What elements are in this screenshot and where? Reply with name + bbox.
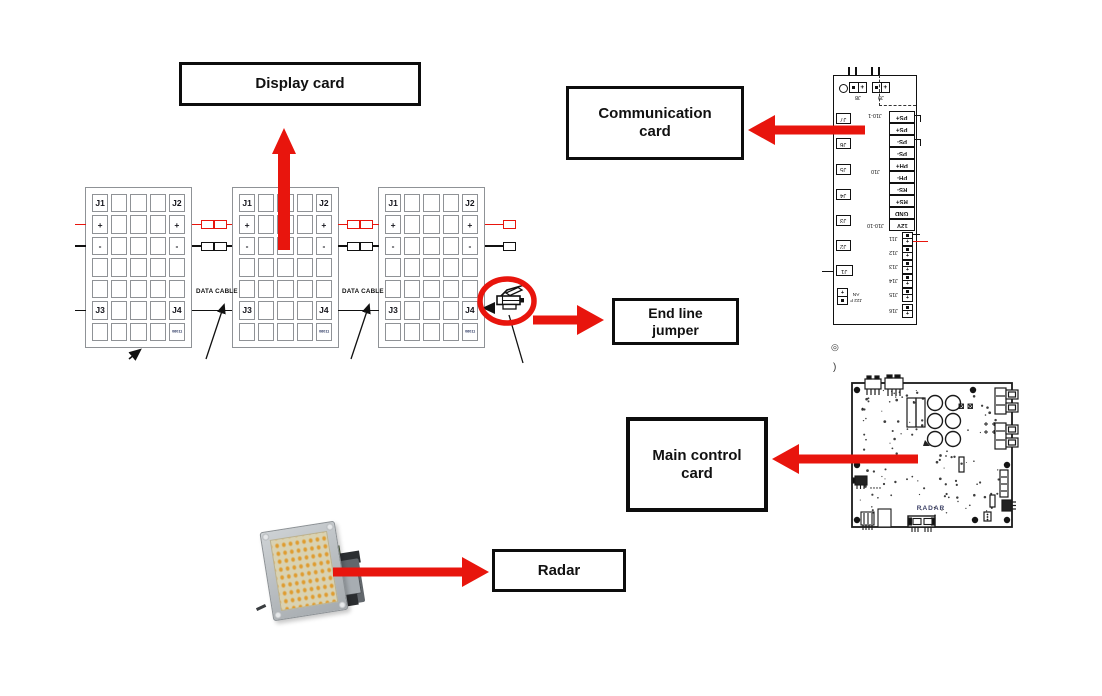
panel-cell: 06011: [462, 323, 478, 341]
comm-io-group-label: J10: [863, 168, 887, 174]
panel-cell: [297, 323, 313, 341]
radar-antenna-plate: [259, 521, 348, 622]
panel-connector-J3: J3: [92, 301, 108, 319]
terminal-plus-cell: +: [903, 281, 912, 287]
link-connector: [201, 242, 214, 251]
panel-cell: [258, 301, 274, 319]
comm-io-terminal-1: PS+: [889, 123, 915, 135]
label-text: J6: [840, 141, 846, 147]
label-text: 12V: [897, 222, 908, 228]
panel-cell: [423, 280, 439, 298]
panel-cell: [130, 237, 146, 255]
link-connector: [214, 242, 227, 251]
panel-cell: [297, 194, 313, 212]
pcb-radar-silkscreen: RADAR: [917, 505, 945, 512]
comm-power-label-J14: J14: [885, 277, 901, 283]
panel-connector--: -: [462, 237, 478, 255]
comm-io-terminal-6: RS-: [889, 183, 915, 195]
data-cable-label-2: DATA CABLE: [342, 288, 384, 295]
panel-connector--: -: [239, 237, 255, 255]
arrow-to-end-line-jumper: [533, 305, 604, 335]
power-link-wire: [192, 310, 232, 312]
panel-cell: [385, 323, 401, 341]
panel-cell: [111, 258, 127, 276]
link-connector: [347, 242, 360, 251]
panel-cell: [423, 194, 439, 212]
panel-cell: [258, 237, 274, 255]
panel-connector-J3: J3: [239, 301, 255, 319]
comm-terminal-label-J8: J8: [849, 94, 867, 100]
label-text: J13: [889, 263, 898, 269]
panel-cell: [258, 258, 274, 276]
main-control-card-label-box: Main control card: [626, 417, 768, 512]
comm-power-label-J12: J12: [885, 249, 901, 255]
label-text: PS-: [897, 138, 907, 144]
label-text: PS+: [896, 114, 908, 120]
panel-cell: [297, 280, 313, 298]
label-text: PH+: [896, 162, 908, 168]
end-line-jumper-label-box: End line jumper: [612, 298, 739, 345]
power-link-wire: [75, 224, 86, 226]
comm-power-terminal-J15: +: [902, 288, 913, 302]
data-cable-leader-2: [351, 305, 369, 359]
panel-cell: [111, 301, 127, 319]
terminal-plus-cell: +: [903, 267, 912, 273]
data-cable-leader-1: [206, 305, 224, 359]
comm-power-terminal-J13: +: [902, 260, 913, 274]
panel-cell: [258, 215, 274, 233]
link-connector: [201, 220, 214, 229]
terminal-plus-cell: +: [838, 289, 847, 297]
link-connector: [360, 220, 373, 229]
panel-connector-+: +: [239, 215, 255, 233]
terminal-plus-cell: +: [903, 253, 912, 259]
link-connector: [360, 242, 373, 251]
comm-fan-label: J22 FAN: [849, 287, 863, 305]
panel-cell: [92, 280, 108, 298]
comm-power-terminal-J14: +: [902, 274, 913, 288]
comm-io-terminal-2: PS-: [889, 135, 915, 147]
comm-connector-J3: J3: [836, 215, 851, 226]
panel-connector-J2: J2: [462, 194, 478, 212]
display-card-panel: J1J2++--J3J406011: [85, 187, 192, 348]
display-card-label: Display card: [255, 75, 344, 93]
comm-dashed-region: [879, 75, 916, 106]
panel-cell: [423, 215, 439, 233]
radar-screw: [326, 523, 334, 531]
panel-cell: [239, 323, 255, 341]
comm-top-pin: [848, 67, 850, 75]
radar-module-photo: [248, 516, 370, 638]
panel-cell: 06011: [316, 323, 332, 341]
panel-cell: [277, 194, 293, 212]
panel-connector-J2: J2: [316, 194, 332, 212]
comm-stub-line: [920, 139, 921, 146]
terminal-plus-cell: +: [903, 295, 912, 301]
panel-cell: [316, 258, 332, 276]
panel-connector-J1: J1: [239, 194, 255, 212]
panel-cell: [258, 323, 274, 341]
panel-cell: [130, 194, 146, 212]
panel-connector-J3: J3: [385, 301, 401, 319]
label-text: PS-: [897, 150, 907, 156]
panel-cell: [169, 280, 185, 298]
panel-cell: [404, 258, 420, 276]
comm-mounting-hole: [839, 84, 848, 93]
radar-mounting-pin: [256, 604, 266, 610]
comm-io-terminal-5: PH-: [889, 171, 915, 183]
comm-connector-J7: J7: [836, 113, 851, 124]
panel-connector-J4: J4: [316, 301, 332, 319]
panel-serial: 06011: [172, 330, 182, 334]
panel-connector--: -: [169, 237, 185, 255]
comm-io-terminal-8: GND: [889, 207, 915, 219]
panel-cell: [404, 301, 420, 319]
comm-power-terminal-J11: +: [902, 232, 913, 246]
display-card-panel: J1J2++--J3J406011: [232, 187, 339, 348]
panel-leader-arrow: [129, 350, 140, 359]
display-card-label-box: Display card: [179, 62, 421, 106]
radar-screw: [274, 611, 282, 619]
label-text: J12: [889, 249, 898, 255]
panel-cell: [277, 323, 293, 341]
terminal-minus-cell: [850, 83, 859, 92]
panel-cell: [150, 258, 166, 276]
panel-cell: [423, 301, 439, 319]
end-line-jumper-glyph: [482, 285, 526, 314]
communication-card-label-line1: Communication: [598, 105, 711, 123]
comm-stub-line: [822, 271, 833, 272]
panel-cell: [150, 237, 166, 255]
terminal-plus-cell: +: [859, 83, 867, 92]
comm-power-label-J13: J13: [885, 263, 901, 269]
panel-cell: [258, 280, 274, 298]
label-text: J5: [840, 166, 846, 172]
panel-serial: 06011: [319, 330, 329, 334]
comm-connector-J6: J6: [836, 138, 851, 149]
panel-connector-+: +: [316, 215, 332, 233]
radar-label: Radar: [538, 562, 581, 580]
panel-cell: [385, 280, 401, 298]
panel-cell: [297, 258, 313, 276]
label-text: J2: [840, 243, 846, 249]
comm-io-terminal-7: RS+: [889, 195, 915, 207]
label-text: J16: [889, 307, 898, 313]
label-text: GND: [895, 210, 908, 216]
label-text: RS+: [896, 198, 908, 204]
label-text: J10-1: [868, 112, 882, 118]
panel-connector--: -: [316, 237, 332, 255]
panel-cell: [130, 258, 146, 276]
panel-cell: [130, 323, 146, 341]
panel-cell: [150, 301, 166, 319]
stray-mark-circle: ◎: [831, 342, 839, 353]
panel-cell: [443, 258, 459, 276]
panel-cell: [404, 237, 420, 255]
panel-cell: [443, 301, 459, 319]
panel-cell: [423, 237, 439, 255]
panel-cell: [92, 258, 108, 276]
panel-cell: [404, 323, 420, 341]
label-text: J14: [889, 277, 898, 283]
radar-label-box: Radar: [492, 549, 626, 592]
label-text: J10: [871, 168, 880, 174]
comm-stub-line: [920, 115, 921, 122]
label-text: J22 FAN: [849, 291, 863, 302]
power-link-wire: [338, 310, 379, 312]
panel-cell: [150, 194, 166, 212]
panel-cell: [277, 258, 293, 276]
comm-io-terminal-9: 12V: [889, 219, 915, 231]
panel-connector-+: +: [92, 215, 108, 233]
label-text: J3: [840, 217, 846, 223]
end-line-jumper-circle: [480, 279, 534, 323]
panel-connector-J1: J1: [92, 194, 108, 212]
power-link-wire: [485, 245, 503, 247]
panel-cell: [297, 301, 313, 319]
comm-power-terminal-J12: +: [902, 246, 913, 260]
panel-cell: [130, 215, 146, 233]
panel-connector-+: +: [385, 215, 401, 233]
data-cable-label-1: DATA CABLE: [196, 288, 238, 295]
wiring-diagram-canvas: Display card Communication card End line…: [0, 0, 1102, 696]
link-connector: [503, 220, 516, 229]
comm-stub-line: [913, 234, 920, 235]
panel-cell: [443, 323, 459, 341]
stray-mark-paren: ): [833, 362, 836, 373]
panel-cell: [462, 280, 478, 298]
panel-cell: [111, 194, 127, 212]
label-text: J1: [841, 268, 847, 274]
panel-cell: [277, 237, 293, 255]
panel-cell: [404, 280, 420, 298]
panel-cell: [404, 194, 420, 212]
panel-connector--: -: [92, 237, 108, 255]
label-text: J11: [889, 235, 897, 241]
pcb-capacitors: [923, 396, 961, 447]
panel-cell: [423, 323, 439, 341]
panel-cell: [111, 323, 127, 341]
panel-cell: [297, 237, 313, 255]
panel-connector--: -: [385, 237, 401, 255]
panel-cell: [277, 280, 293, 298]
comm-io-group-label: J10-10: [863, 222, 887, 228]
panel-connector-J2: J2: [169, 194, 185, 212]
comm-connector-J5: J5: [836, 164, 851, 175]
comm-top-pin: [871, 67, 873, 75]
comm-power-label-J11: J11: [885, 235, 901, 241]
panel-cell: [239, 258, 255, 276]
radar-screw: [262, 533, 270, 541]
comm-connector-J4: J4: [836, 189, 851, 200]
panel-cell: [258, 194, 274, 212]
label-text: PS+: [896, 126, 908, 132]
panel-cell: [404, 215, 420, 233]
communication-card-label-box: Communication card: [566, 86, 744, 160]
panel-cell: [443, 194, 459, 212]
end-line-jumper-label-line2: jumper: [652, 322, 699, 339]
panel-connector-J4: J4: [169, 301, 185, 319]
panel-cell: [239, 280, 255, 298]
label-text: PH-: [897, 174, 907, 180]
panel-cell: [297, 215, 313, 233]
panel-cell: [111, 237, 127, 255]
radar-antenna-array: [270, 531, 339, 611]
panel-cell: [385, 258, 401, 276]
label-text: J7: [840, 116, 846, 122]
panel-cell: [92, 323, 108, 341]
panel-cell: [130, 301, 146, 319]
communication-card-label-line2: card: [639, 123, 671, 141]
panel-cell: [150, 215, 166, 233]
comm-io-group-label: J10-1: [863, 112, 887, 118]
comm-power-label-J16: J16: [885, 307, 901, 313]
label-text: RS-: [897, 186, 907, 192]
power-link-wire: [75, 245, 86, 247]
comm-connector-J1: J1: [836, 265, 853, 276]
panel-serial: 06011: [465, 330, 475, 334]
panel-cell: [443, 215, 459, 233]
comm-io-terminal-0: PS+: [889, 111, 915, 123]
panel-cell: [150, 323, 166, 341]
label-text: J4: [840, 192, 846, 198]
link-connector: [214, 220, 227, 229]
comm-top-pin: [855, 67, 857, 75]
comm-top-pin: [878, 67, 880, 75]
panel-cell: [150, 280, 166, 298]
label-text: J15: [889, 291, 898, 297]
end-line-jumper-label-line1: End line: [648, 305, 702, 322]
panel-connector-J1: J1: [385, 194, 401, 212]
terminal-minus-cell: [838, 297, 847, 304]
comm-power-label-J15: J15: [885, 291, 901, 297]
power-link-wire: [75, 310, 86, 312]
panel-cell: [111, 280, 127, 298]
panel-cell: [443, 280, 459, 298]
link-connector: [347, 220, 360, 229]
terminal-plus-cell: +: [903, 239, 912, 245]
panel-connector-+: +: [462, 215, 478, 233]
panel-cell: [111, 215, 127, 233]
label-text: J10-10: [867, 222, 884, 228]
panel-cell: [443, 237, 459, 255]
comm-fan-terminal: +: [837, 288, 848, 305]
display-card-panel: J1J2++--J3J406011: [378, 187, 485, 348]
panel-cell: [130, 280, 146, 298]
main-control-card-board: RADAR: [845, 330, 1030, 535]
main-control-card-label-line1: Main control: [652, 447, 741, 465]
terminal-plus-cell: +: [903, 311, 912, 317]
power-link-wire: [485, 224, 503, 226]
panel-cell: [462, 258, 478, 276]
comm-io-terminal-4: PH+: [889, 159, 915, 171]
comm-terminal-block-J8: +: [849, 82, 867, 93]
label-text: J8: [855, 94, 861, 100]
jumper-leader-line: [509, 315, 523, 363]
panel-connector-+: +: [169, 215, 185, 233]
panel-cell: [277, 301, 293, 319]
panel-cell: [169, 258, 185, 276]
panel-cell: [277, 215, 293, 233]
comm-io-terminal-3: PS-: [889, 147, 915, 159]
panel-connector-J4: J4: [462, 301, 478, 319]
panel-cell: 06011: [169, 323, 185, 341]
comm-connector-J2: J2: [836, 240, 851, 251]
panel-cell: [316, 280, 332, 298]
communication-card-board: +J8+J9J7J6J5J4J3J2J1PS+PS+PS-PS-PH+PH-RS…: [833, 75, 917, 325]
radar-screw: [338, 601, 346, 609]
main-control-card-label-line2: card: [681, 465, 713, 483]
comm-power-terminal-J16: +: [902, 304, 913, 318]
comm-stub-line: [913, 241, 928, 243]
panel-cell: [423, 258, 439, 276]
link-connector: [503, 242, 516, 251]
